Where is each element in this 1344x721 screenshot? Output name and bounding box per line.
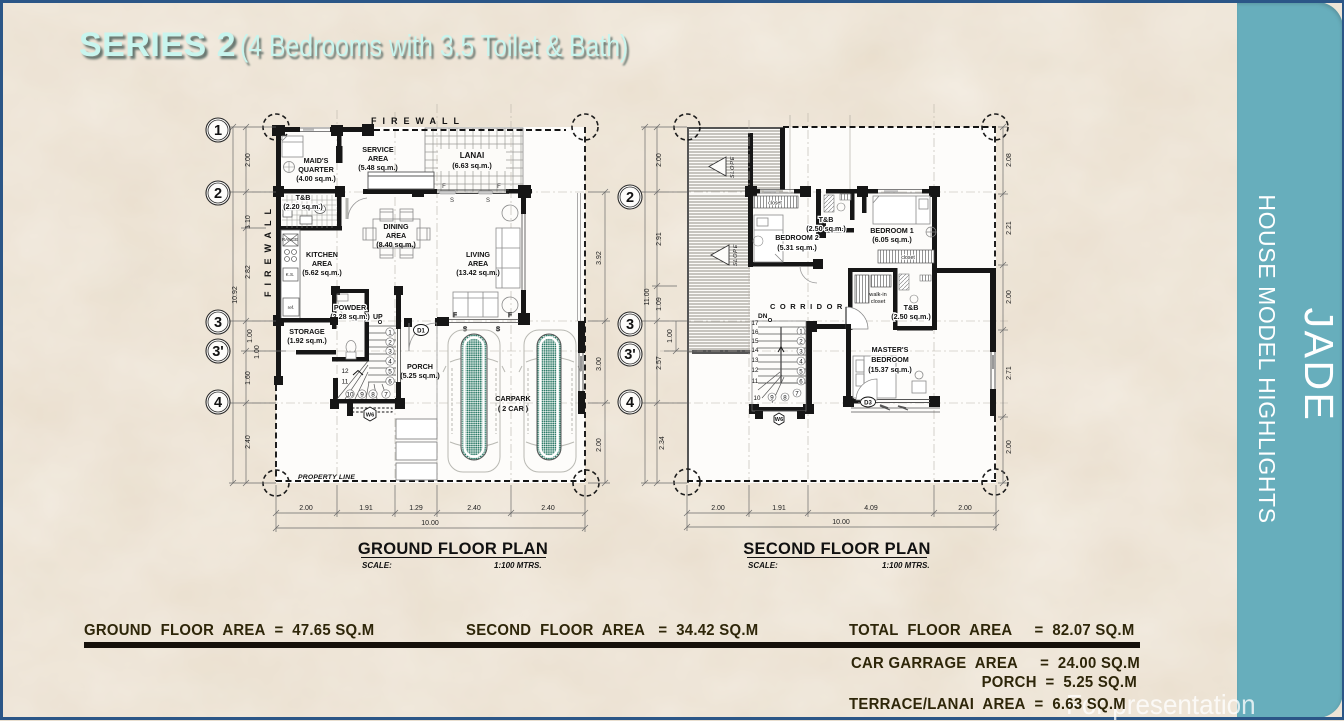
svg-text:DN: DN bbox=[758, 313, 768, 320]
svg-text:walk-in: walk-in bbox=[868, 292, 886, 298]
svg-text:2: 2 bbox=[626, 190, 634, 206]
svg-text:3': 3' bbox=[212, 344, 224, 360]
svg-text:1:100 MTRS.: 1:100 MTRS. bbox=[882, 561, 930, 570]
svg-text:2.00: 2.00 bbox=[1006, 440, 1013, 454]
svg-text:LANAI: LANAI bbox=[460, 151, 484, 160]
svg-text:SLOPE: SLOPE bbox=[733, 244, 739, 266]
svg-text:CORRIDOR: CORRIDOR bbox=[770, 302, 847, 311]
svg-text:1.91: 1.91 bbox=[772, 505, 786, 512]
svg-text:11: 11 bbox=[752, 378, 759, 385]
svg-text:2.00: 2.00 bbox=[245, 153, 252, 167]
svg-text:3: 3 bbox=[799, 349, 803, 356]
svg-text:2.00: 2.00 bbox=[596, 438, 603, 452]
svg-text:2.00: 2.00 bbox=[711, 505, 725, 512]
svg-text:K.S.: K.S. bbox=[286, 272, 295, 277]
svg-text:UP: UP bbox=[373, 314, 383, 321]
svg-text:BEDROOM: BEDROOM bbox=[871, 355, 909, 364]
svg-text:16: 16 bbox=[752, 329, 759, 336]
svg-text:SCALE:: SCALE: bbox=[362, 561, 392, 570]
svg-text:1.09: 1.09 bbox=[656, 297, 663, 311]
svg-text:1.00: 1.00 bbox=[254, 345, 261, 359]
svg-text:1: 1 bbox=[388, 330, 392, 337]
svg-text:2.08: 2.08 bbox=[1006, 153, 1013, 167]
svg-text:F: F bbox=[508, 313, 512, 319]
svg-text:S: S bbox=[486, 198, 490, 204]
svg-text:1:100 MTRS.: 1:100 MTRS. bbox=[494, 561, 542, 570]
svg-text:1.60: 1.60 bbox=[245, 371, 252, 385]
svg-text:SERVICE: SERVICE bbox=[362, 145, 394, 154]
svg-text:(5.25 sq.m.): (5.25 sq.m.) bbox=[400, 371, 440, 380]
svg-text:D1: D1 bbox=[417, 329, 425, 335]
svg-text:1.00: 1.00 bbox=[667, 329, 674, 343]
svg-text:6: 6 bbox=[799, 379, 803, 386]
svg-text:3: 3 bbox=[388, 349, 392, 356]
svg-text:2.82: 2.82 bbox=[245, 265, 252, 279]
svg-text:(5.62 sq.m.): (5.62 sq.m.) bbox=[302, 268, 342, 277]
svg-text:9: 9 bbox=[770, 395, 774, 402]
svg-text:7: 7 bbox=[384, 392, 388, 399]
svg-text:2.91: 2.91 bbox=[656, 232, 663, 246]
svg-text:12: 12 bbox=[752, 367, 759, 374]
svg-text:1.10: 1.10 bbox=[245, 215, 252, 229]
svg-text:closet: closet bbox=[871, 299, 886, 305]
svg-text:8: 8 bbox=[783, 395, 787, 402]
svg-text:W6: W6 bbox=[366, 413, 374, 419]
svg-text:5: 5 bbox=[799, 369, 803, 376]
svg-text:13: 13 bbox=[752, 357, 759, 364]
svg-text:15: 15 bbox=[752, 338, 759, 345]
svg-text:2.40: 2.40 bbox=[467, 505, 481, 512]
svg-text:F: F bbox=[497, 184, 501, 190]
svg-text:(2.20 sq.m.): (2.20 sq.m.) bbox=[283, 202, 323, 211]
svg-text:(13.42 sq.m.): (13.42 sq.m.) bbox=[456, 268, 500, 277]
svg-text:F: F bbox=[453, 313, 457, 319]
svg-text:AREA: AREA bbox=[312, 259, 332, 268]
svg-text:8: 8 bbox=[371, 392, 375, 399]
svg-text:10: 10 bbox=[346, 392, 354, 399]
svg-text:(2.50 sq.m.): (2.50 sq.m.) bbox=[806, 224, 846, 233]
svg-text:POWDER: POWDER bbox=[334, 303, 367, 312]
svg-text:HOUSE MODEL HIGHLIGHTS: HOUSE MODEL HIGHLIGHTS bbox=[1254, 194, 1280, 523]
svg-text:3: 3 bbox=[626, 317, 634, 333]
svg-text:AREA: AREA bbox=[468, 259, 488, 268]
svg-text:11.00: 11.00 bbox=[644, 288, 651, 305]
svg-text:10.00: 10.00 bbox=[421, 520, 439, 527]
svg-text:STORAGE: STORAGE bbox=[289, 327, 325, 336]
svg-text:(4.00 sq.m.): (4.00 sq.m.) bbox=[296, 174, 336, 183]
svg-text:3': 3' bbox=[624, 347, 636, 363]
svg-text:2.34: 2.34 bbox=[659, 436, 666, 450]
svg-text:1: 1 bbox=[214, 123, 222, 139]
svg-text:4.09: 4.09 bbox=[864, 505, 878, 512]
svg-text:RANGE: RANGE bbox=[282, 237, 298, 242]
svg-text:PORCH: PORCH bbox=[407, 362, 433, 371]
svg-text:F: F bbox=[442, 184, 446, 190]
svg-text:( 2 CAR ): ( 2 CAR ) bbox=[498, 404, 529, 413]
svg-text:10.00: 10.00 bbox=[832, 519, 850, 526]
svg-text:2.00: 2.00 bbox=[958, 505, 972, 512]
svg-text:5: 5 bbox=[388, 369, 392, 376]
svg-text:QUARTER: QUARTER bbox=[298, 165, 334, 174]
svg-text:4: 4 bbox=[214, 395, 222, 411]
svg-text:10: 10 bbox=[754, 395, 761, 402]
svg-text:11: 11 bbox=[342, 379, 349, 386]
svg-text:(5.31 sq.m.): (5.31 sq.m.) bbox=[777, 243, 817, 252]
svg-text:2.40: 2.40 bbox=[245, 435, 252, 449]
svg-text:(15.37 sq.m.): (15.37 sq.m.) bbox=[868, 365, 912, 374]
svg-text:12: 12 bbox=[341, 368, 349, 375]
svg-text:3.00: 3.00 bbox=[596, 357, 603, 371]
svg-text:D3: D3 bbox=[864, 401, 872, 407]
svg-text:SLOPE: SLOPE bbox=[730, 156, 736, 178]
svg-text:1.91: 1.91 bbox=[359, 505, 373, 512]
svg-text:AREA: AREA bbox=[386, 231, 406, 240]
svg-text:FIREWALL: FIREWALL bbox=[371, 116, 465, 126]
svg-text:4: 4 bbox=[388, 359, 392, 366]
svg-text:LIVING: LIVING bbox=[466, 250, 490, 259]
svg-text:2.71: 2.71 bbox=[1006, 366, 1013, 380]
svg-text:(6.05 sq.m.): (6.05 sq.m.) bbox=[872, 235, 912, 244]
svg-text:MASTER'S: MASTER'S bbox=[872, 345, 909, 354]
svg-text:(8.40 sq.m.): (8.40 sq.m.) bbox=[376, 240, 416, 249]
svg-text:2.40: 2.40 bbox=[541, 505, 555, 512]
svg-text:14: 14 bbox=[752, 347, 759, 354]
svg-text:BEDROOM 1: BEDROOM 1 bbox=[870, 226, 914, 235]
svg-text:DINING: DINING bbox=[383, 222, 409, 231]
svg-text:(2.50 sq.m.): (2.50 sq.m.) bbox=[891, 312, 931, 321]
svg-text:ref.: ref. bbox=[288, 305, 295, 310]
svg-text:2: 2 bbox=[388, 340, 392, 347]
svg-text:7: 7 bbox=[795, 391, 799, 398]
svg-text:6: 6 bbox=[388, 379, 392, 386]
svg-text:GROUND FLOOR PLAN: GROUND FLOOR PLAN bbox=[358, 540, 548, 558]
svg-text:2.00: 2.00 bbox=[656, 153, 663, 167]
svg-text:4: 4 bbox=[626, 395, 634, 411]
svg-text:FIREWALL: FIREWALL bbox=[263, 203, 273, 297]
svg-text:(5.48 sq.m.): (5.48 sq.m.) bbox=[358, 163, 398, 172]
svg-text:KITCHEN: KITCHEN bbox=[306, 250, 338, 259]
svg-text:T&B: T&B bbox=[296, 193, 311, 202]
svg-text:S: S bbox=[496, 327, 500, 333]
svg-text:2.00: 2.00 bbox=[299, 505, 313, 512]
svg-text:S: S bbox=[450, 198, 454, 204]
svg-text:2: 2 bbox=[214, 186, 222, 202]
svg-text:(6.63 sq.m.): (6.63 sq.m.) bbox=[452, 161, 492, 170]
svg-text:JADE: JADE bbox=[1296, 308, 1342, 423]
svg-text:4: 4 bbox=[799, 359, 803, 366]
svg-text:1: 1 bbox=[799, 329, 803, 336]
svg-text:CARPARK: CARPARK bbox=[495, 394, 531, 403]
svg-text:AREA: AREA bbox=[368, 154, 388, 163]
svg-text:3.92: 3.92 bbox=[596, 251, 603, 265]
svg-text:(1.92 sq.m.): (1.92 sq.m.) bbox=[287, 336, 327, 345]
svg-text:closet: closet bbox=[768, 201, 782, 207]
svg-text:9: 9 bbox=[360, 392, 364, 399]
svg-text:W6: W6 bbox=[775, 417, 783, 423]
svg-text:2: 2 bbox=[799, 339, 803, 346]
svg-text:2.57: 2.57 bbox=[656, 356, 663, 370]
svg-text:1.29: 1.29 bbox=[409, 505, 423, 512]
svg-text:T&B: T&B bbox=[819, 215, 834, 224]
svg-text:SCALE:: SCALE: bbox=[748, 561, 778, 570]
svg-text:3: 3 bbox=[214, 315, 222, 331]
svg-text:2.21: 2.21 bbox=[1006, 221, 1013, 235]
svg-text:SECOND FLOOR PLAN: SECOND FLOOR PLAN bbox=[743, 540, 931, 558]
svg-text:10.92: 10.92 bbox=[232, 286, 239, 304]
svg-text:1.00: 1.00 bbox=[247, 329, 254, 343]
svg-text:17: 17 bbox=[752, 320, 759, 327]
svg-text:MAID'S: MAID'S bbox=[304, 156, 329, 165]
svg-text:T&B: T&B bbox=[904, 303, 919, 312]
svg-text:BEDROOM 2: BEDROOM 2 bbox=[775, 233, 819, 242]
svg-text:2.00: 2.00 bbox=[1006, 290, 1013, 304]
svg-text:PROPERTY LINE: PROPERTY LINE bbox=[298, 474, 355, 481]
svg-text:closet: closet bbox=[901, 255, 915, 261]
